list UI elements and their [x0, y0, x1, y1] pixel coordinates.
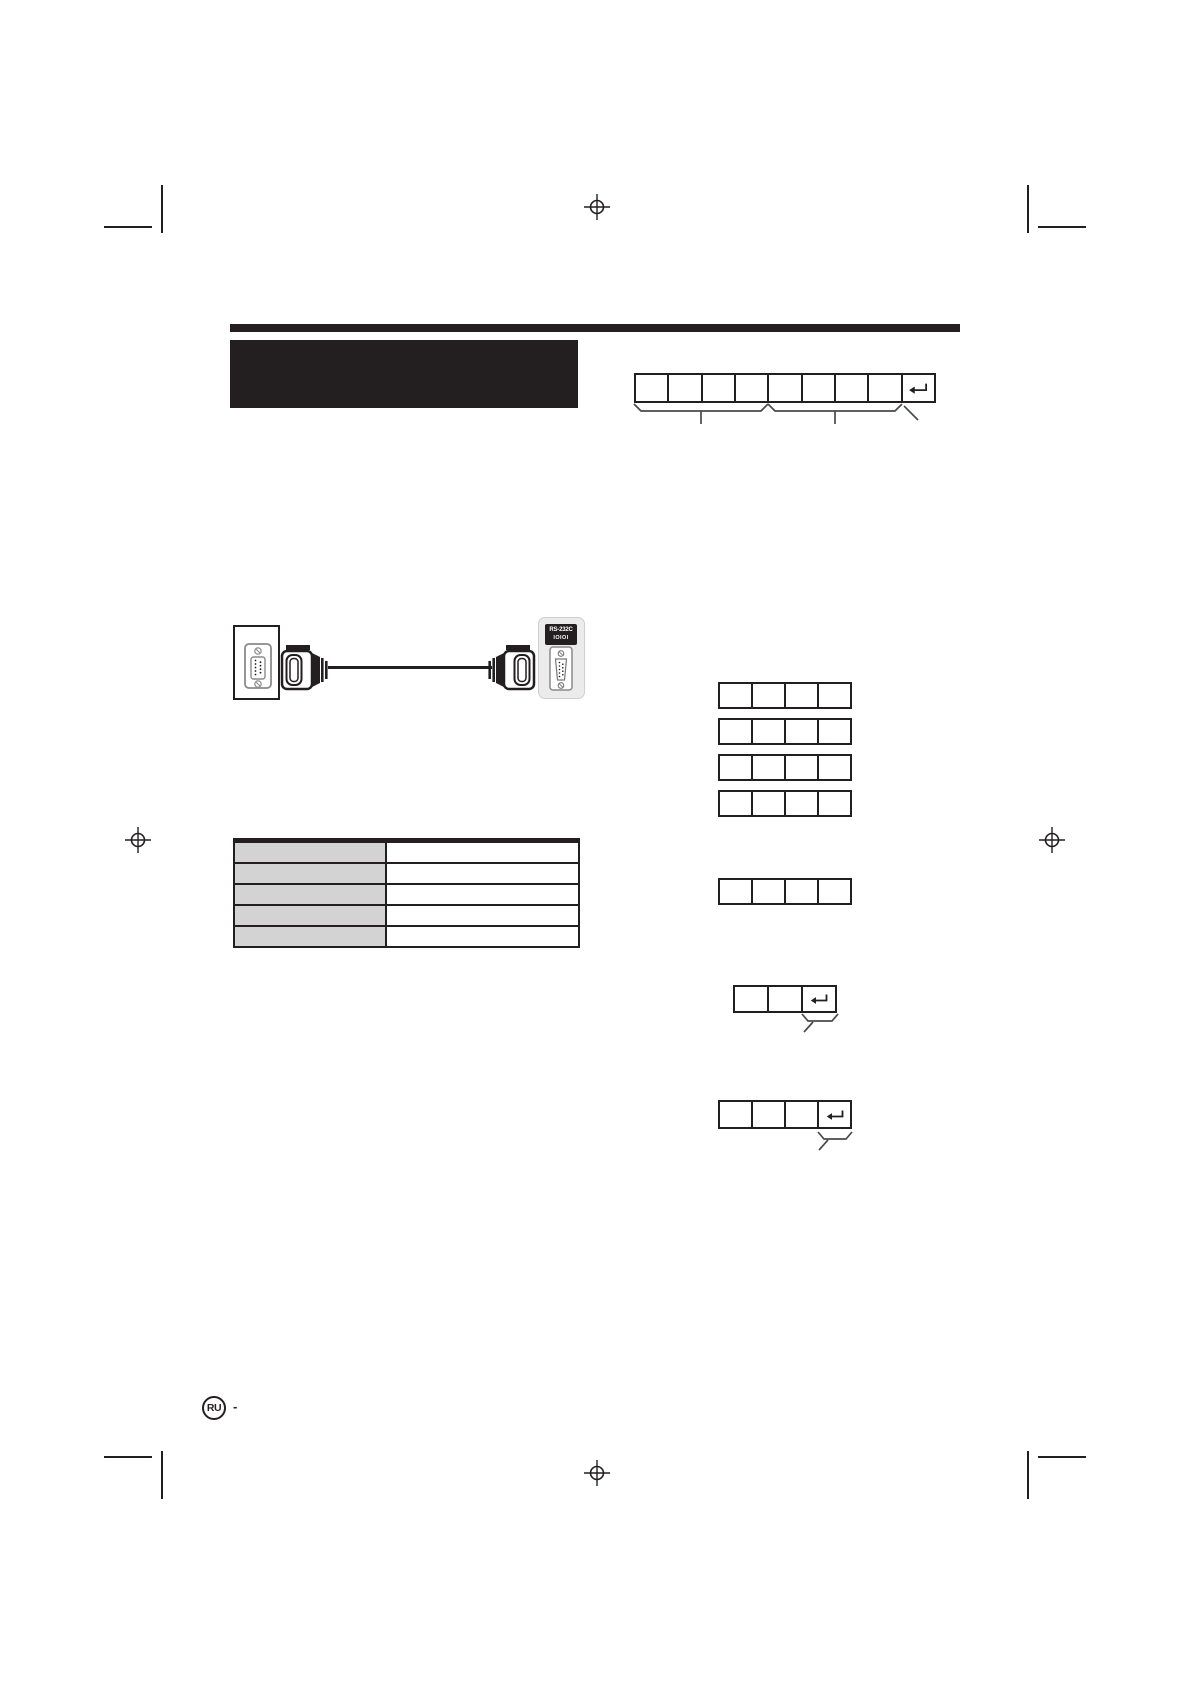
table-label-cell: [235, 927, 387, 946]
parameter-grid: [718, 790, 852, 817]
port-label-line1: RS-232C: [549, 627, 572, 635]
table-value-cell: [387, 843, 578, 862]
grid-cell: [753, 684, 786, 707]
grid-cell: [636, 375, 669, 401]
return-cell-brace: [818, 1132, 852, 1139]
table-row: [235, 906, 578, 927]
return-cell: [819, 1102, 850, 1127]
table-value-cell: [387, 927, 578, 946]
grid-cell: [720, 756, 753, 779]
pointer-tick: [904, 406, 918, 420]
grid-cell: [753, 880, 786, 903]
manual-page: RS-232C IOIOI RU -: [0, 0, 1190, 1684]
response-grid-long: [718, 1100, 852, 1129]
registration-target-icon: [584, 194, 610, 220]
grid-cell: [753, 756, 786, 779]
response-grid-short: [733, 985, 837, 1013]
table-label-cell: [235, 843, 387, 862]
grid-cell: [753, 1102, 786, 1127]
registration-target-icon: [125, 827, 151, 853]
grid-cell: [786, 756, 819, 779]
grid-cell: [819, 880, 850, 903]
grid-cell: [735, 987, 769, 1011]
language-badge: RU: [202, 1396, 226, 1420]
return-arrow-icon: [826, 1109, 844, 1121]
crop-mark: [161, 1451, 163, 1499]
grid-cell: [720, 684, 753, 707]
pointer-tick: [819, 1140, 828, 1150]
table-label-cell: [235, 885, 387, 904]
single-parameter-grid: [718, 878, 852, 905]
table-value-cell: [387, 906, 578, 925]
footer-dash: -: [233, 1399, 237, 1414]
dsub-male-icon: [549, 646, 573, 691]
header-rule: [230, 324, 960, 332]
grid-cell: [819, 756, 850, 779]
return-cell: [903, 375, 934, 401]
grid-cell: [836, 375, 869, 401]
grid-cell: [819, 792, 850, 815]
command-group-brace: [768, 404, 902, 411]
parameter-grid: [718, 754, 852, 781]
grid-cell: [669, 375, 702, 401]
grid-cell: [819, 684, 850, 707]
table-row: [235, 885, 578, 906]
grid-cell: [769, 987, 803, 1011]
grid-cell: [869, 375, 902, 401]
pointer-tick: [804, 1022, 813, 1032]
return-cell-brace: [802, 1014, 838, 1021]
grid-cell: [819, 720, 850, 743]
grid-cell: [720, 1102, 753, 1127]
parameter-grid: [718, 682, 852, 709]
cable-plug-icon: [280, 644, 330, 692]
return-arrow-icon: [810, 993, 828, 1005]
grid-cell: [753, 792, 786, 815]
grid-cell: [786, 880, 819, 903]
annotation-overlay: [0, 0, 1190, 1684]
grid-cell: [736, 375, 769, 401]
parameter-grid: [718, 718, 852, 745]
crop-mark: [104, 226, 152, 228]
registration-target-icon: [1039, 827, 1065, 853]
cable-plug-icon: [486, 644, 536, 692]
section-title-box: [230, 340, 578, 408]
crop-mark: [1027, 1451, 1029, 1499]
grid-cell: [720, 720, 753, 743]
command-group-brace: [634, 404, 768, 411]
spec-table: [233, 838, 580, 948]
dsub-female-icon: [244, 643, 272, 689]
crop-mark: [1038, 1456, 1086, 1458]
grid-cell: [703, 375, 736, 401]
grid-cell: [753, 720, 786, 743]
port-label-line2: IOIOI: [553, 635, 568, 642]
table-label-cell: [235, 906, 387, 925]
table-value-cell: [387, 864, 578, 883]
table-label-cell: [235, 864, 387, 883]
registration-target-icon: [584, 1460, 610, 1486]
crop-mark: [1038, 226, 1086, 228]
grid-cell: [786, 792, 819, 815]
cable-line: [328, 666, 492, 669]
crop-mark: [1027, 185, 1029, 233]
table-row: [235, 927, 578, 946]
crop-mark: [161, 185, 163, 233]
return-cell: [803, 987, 835, 1011]
table-value-cell: [387, 885, 578, 904]
port-label: RS-232C IOIOI: [545, 624, 577, 645]
crop-mark: [104, 1456, 152, 1458]
grid-cell: [720, 880, 753, 903]
grid-cell: [803, 375, 836, 401]
grid-cell: [786, 720, 819, 743]
grid-cell: [769, 375, 802, 401]
command-format-grid: [634, 373, 936, 403]
grid-cell: [720, 792, 753, 815]
grid-cell: [786, 1102, 819, 1127]
table-row: [235, 843, 578, 864]
grid-cell: [786, 684, 819, 707]
table-row: [235, 864, 578, 885]
return-arrow-icon: [908, 382, 928, 395]
